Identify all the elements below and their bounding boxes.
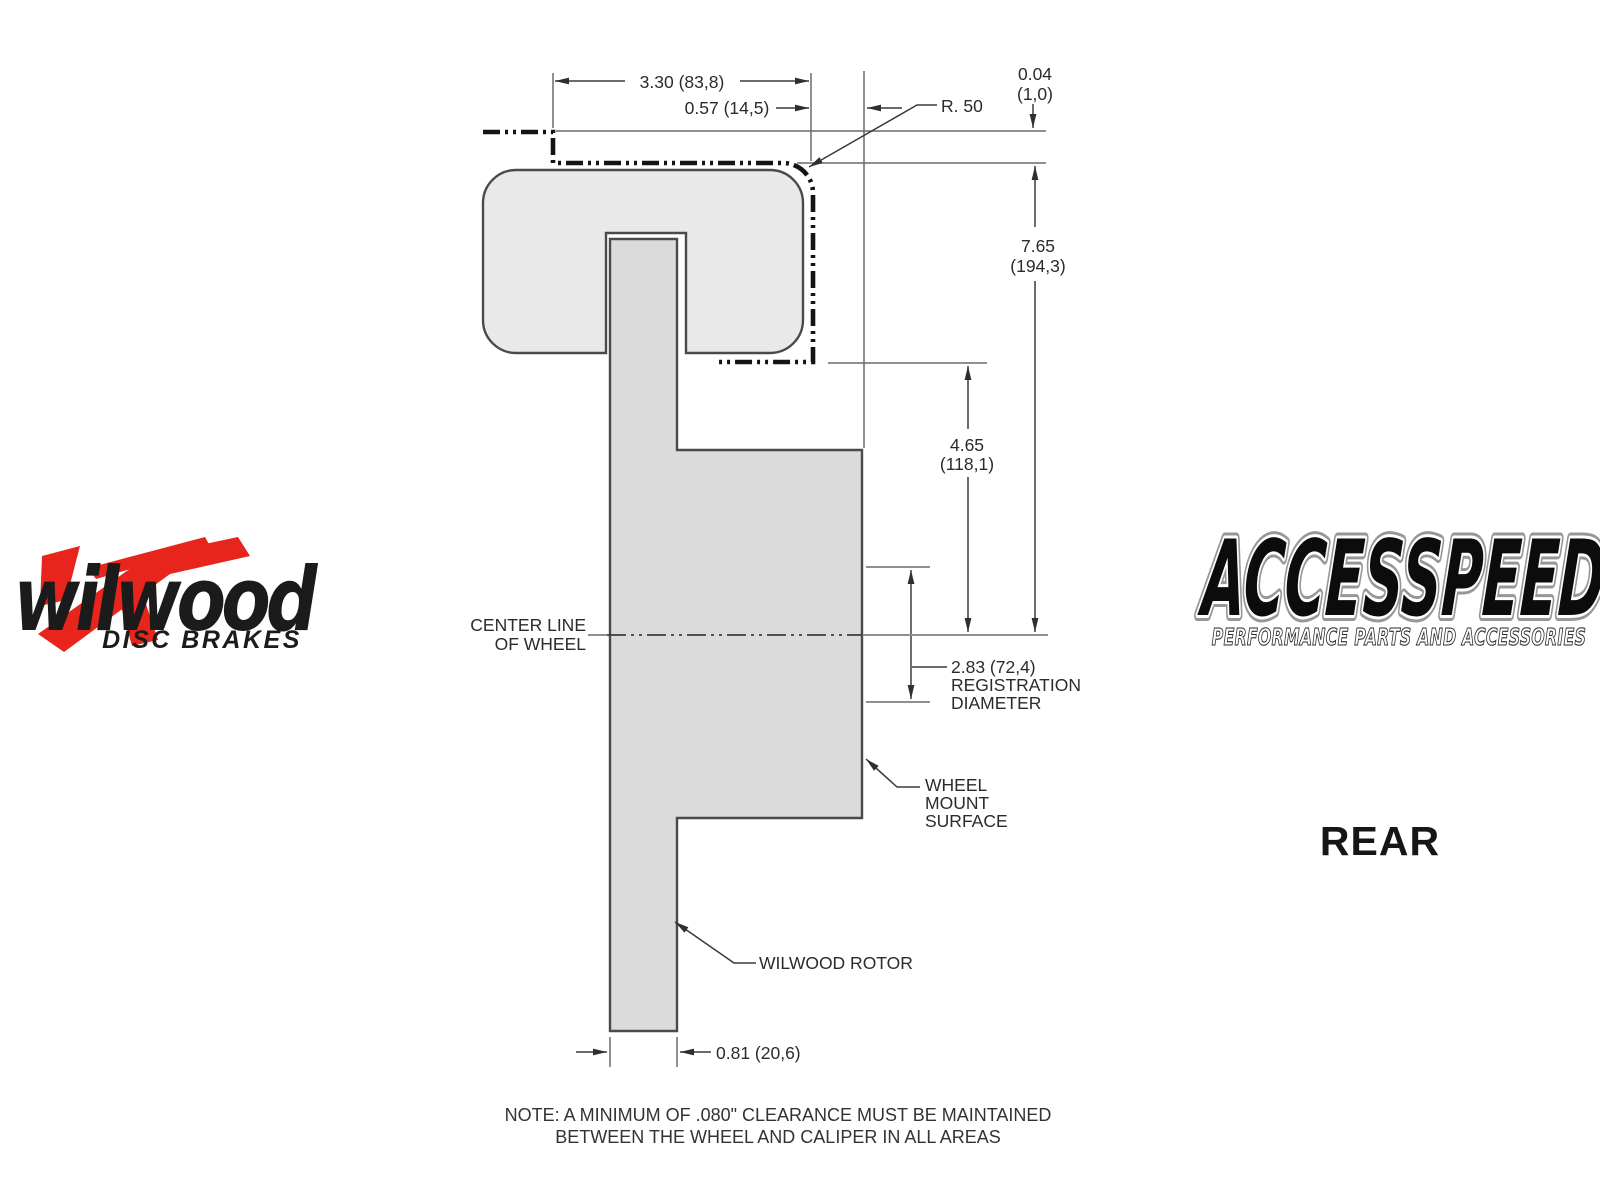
accesspeed-tagline: PERFORMANCE PARTS AND ACCESSORIES (1212, 624, 1586, 651)
wheel-mount-label-1: WHEEL (925, 775, 988, 795)
dim-3-30-label: 3.30 (83,8) (640, 72, 725, 92)
dim-0-57-label: 0.57 (14,5) (685, 98, 770, 118)
wheel-mount-label-3: SURFACE (925, 811, 1008, 831)
center-line-label-1: CENTER LINE (470, 615, 586, 635)
dimension-3-30: 3.30 (83,8) (555, 72, 809, 92)
dimension-4-65: 4.65 (118,1) (940, 366, 994, 632)
technical-drawing: CENTER LINE OF WHEEL 3.30 (83,8) 0.57 (1… (0, 0, 1600, 1200)
dim-0-81-label: 0.81 (20,6) (716, 1043, 801, 1063)
dim-4-65-in: 4.65 (950, 435, 984, 455)
radius-label: R. 50 (941, 96, 983, 116)
dim-4-65-mm: (118,1) (940, 454, 994, 474)
rotor-callout: WILWOOD ROTOR (675, 922, 913, 973)
dim-2-83-label: 2.83 (72,4) (951, 657, 1036, 677)
dim-7-65-mm: (194,3) (1010, 256, 1065, 276)
wilwood-logo: wilwood DISC BRAKES (13, 537, 318, 654)
dimension-0-57: 0.57 (14,5) (685, 98, 902, 118)
wheel-mount-callout: WHEEL MOUNT SURFACE (866, 759, 1008, 831)
note-line-2: BETWEEN THE WHEEL AND CALIPER IN ALL ARE… (555, 1127, 1000, 1147)
clearance-note: NOTE: A MINIMUM OF .080" CLEARANCE MUST … (505, 1105, 1052, 1147)
registration-label-1: REGISTRATION (951, 675, 1081, 695)
wheel-mount-label-2: MOUNT (925, 793, 989, 813)
accesspeed-logo: ACCESSPEED ACCESSPEED ACCESSPEED PERFORM… (1196, 518, 1600, 651)
rotor-label: WILWOOD ROTOR (759, 953, 913, 973)
wilwood-tagline: DISC BRAKES (102, 626, 302, 654)
brake-clearance-diagram-page: CENTER LINE OF WHEEL 3.30 (83,8) 0.57 (1… (0, 0, 1600, 1200)
dim-7-65-in: 7.65 (1021, 236, 1055, 256)
dimension-2-83: 2.83 (72,4) REGISTRATION DIAMETER (911, 570, 1081, 713)
dim-0-04-in: 0.04 (1018, 64, 1052, 84)
registration-label-2: DIAMETER (951, 693, 1041, 713)
dimension-0-04: 0.04 (1,0) (1017, 64, 1053, 128)
view-label-rear: REAR (1320, 818, 1440, 864)
dimension-7-65: 7.65 (194,3) (1010, 166, 1065, 632)
accesspeed-wordmark: ACCESSPEED (1196, 518, 1600, 640)
note-line-1: NOTE: A MINIMUM OF .080" CLEARANCE MUST … (505, 1105, 1052, 1125)
dim-0-04-mm: (1,0) (1017, 84, 1053, 104)
center-line-label-2: OF WHEEL (495, 634, 587, 654)
